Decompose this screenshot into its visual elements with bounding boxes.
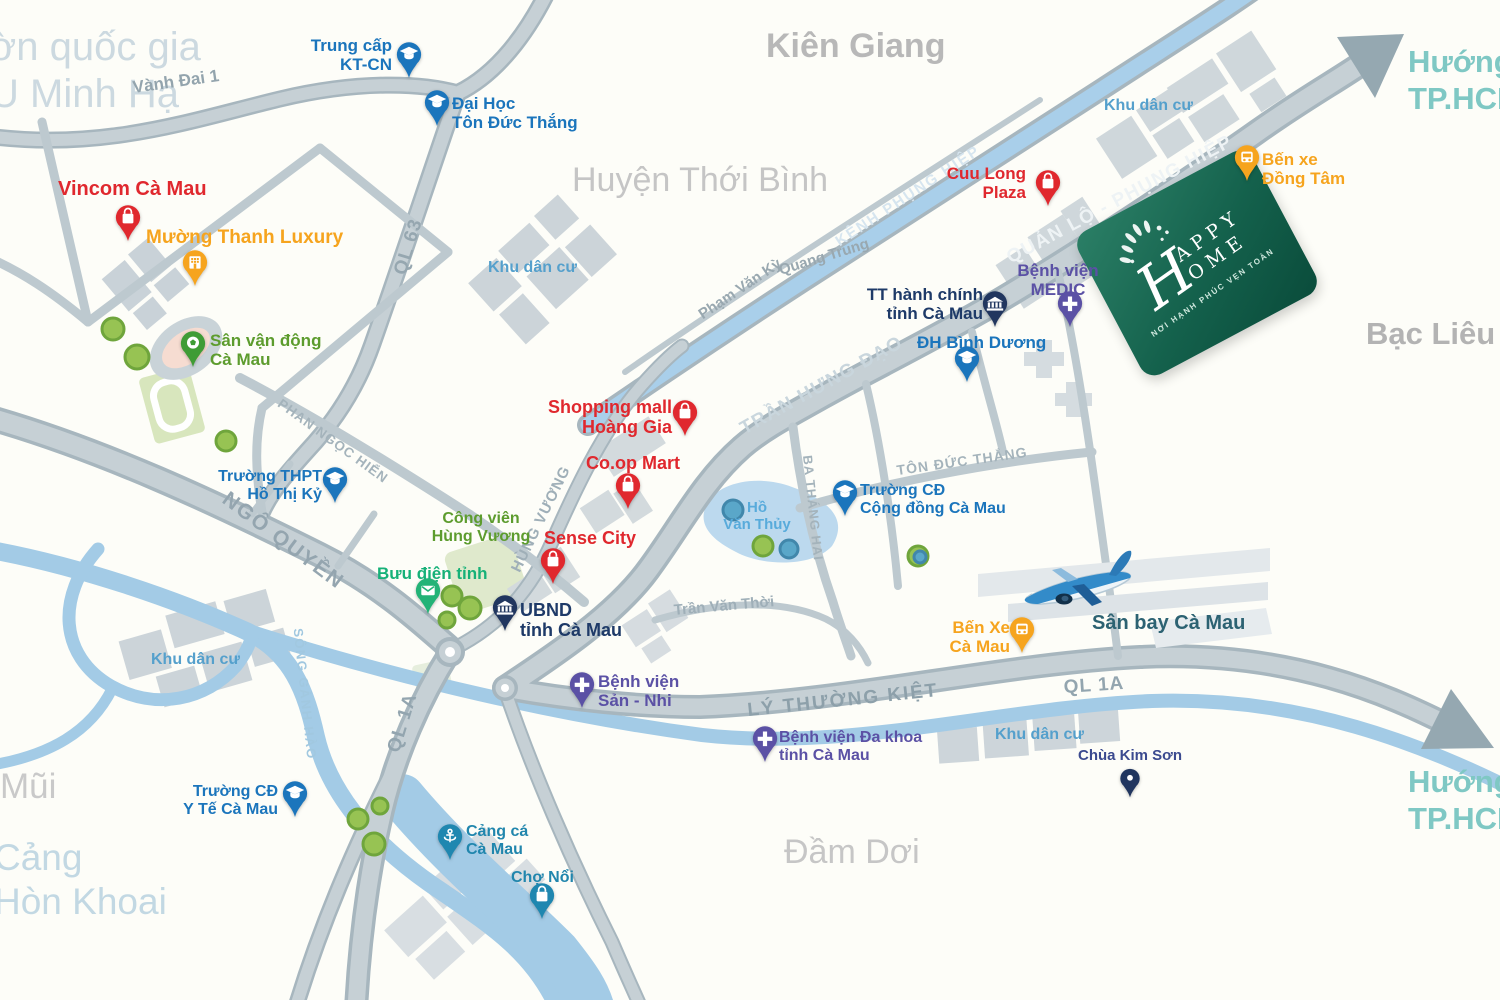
poi-cang-ca-pin [435,822,465,862]
ca-mau-location-map: ờn quốc gia U Minh Hạ Kiên Giang Huyện T… [0,0,1500,1000]
poi-label-cang-ca: Cảng cá Cà Mau [466,823,528,859]
poi-label-ben-xe-ca-mau: Bến Xe Cà Mau [950,618,1010,656]
rivers [0,548,1500,1000]
poi-sense-city-pin [538,546,568,586]
anchor-pin-icon [435,822,465,862]
education-pin-icon [280,779,310,819]
poi-label-ben-xe-dong-tam: Bến xe Đồng Tâm [1262,150,1345,188]
poi-tt-hanh-chinh-pin [980,289,1010,329]
lake-label-ho-van-thuy: Hồ Văn Thủy [723,500,791,534]
poi-bv-da-khoa-pin [750,724,780,764]
poi-label-dh-ton-duc-thang: Đại Học Tôn Đức Thắng [452,94,578,132]
poi-label-cho-noi: Chợ Nổi [511,869,574,887]
hospital-pin-icon [567,670,597,710]
region-mui: Mũi [0,766,56,807]
poi-ben-xe-ca-mau-pin [1007,615,1037,655]
poi-hoang-gia-pin [670,398,700,438]
poi-cuu-long-plaza-pin [1033,168,1063,208]
bus-station-pin-icon [1007,615,1037,655]
poi-cd-cong-dong-pin [830,478,860,518]
poi-label-hoang-gia: Shopping mall Hoàng Gia [548,397,672,437]
education-pin-icon [394,40,424,80]
direction-hcm-east: Hướng TP.HCM [1408,764,1500,837]
shopping-bag-pin-icon [613,471,643,511]
education-pin-icon [422,88,452,128]
poi-chua-kim-son-pin [1118,767,1142,799]
shopping-bag-pin-icon [538,546,568,586]
poi-label-trung-cap-ktcn: Trung cấp KT-CN [311,36,392,74]
poi-bv-san-nhi-pin [567,670,597,710]
poi-label-buu-dien: Bưu điện tỉnh [377,564,488,583]
poi-label-coop-mart: Co.op Mart [586,453,680,473]
shopping-bag-pin-icon [670,398,700,438]
direction-hcm-north: Hướng TP.HCM [1408,44,1500,117]
education-pin-icon [830,478,860,518]
poi-cd-y-te-pin [280,779,310,819]
shopping-bag-pin-icon [113,203,143,243]
temple-pin-icon [1118,767,1142,799]
airport-label-san-bay: Sân bay Cà Mau [1092,612,1245,634]
poi-vincom-pin [113,203,143,243]
poi-label-cuu-long-plaza: Cuu Long Plaza [947,164,1026,202]
region-cang-hon-khoai: Cảng Hòn Khoai [0,836,167,923]
poi-label-muong-thanh: Mường Thanh Luxury [146,227,343,248]
area-khu-dan-cu-3: Khu dân cư [151,651,240,669]
poi-label-ubnd: UBND tỉnh Cà Mau [520,600,622,640]
poi-label-bv-da-khoa: Bệnh viện Đa khoa tỉnh Cà Mau [779,729,922,765]
region-dam-doi: Đầm Dơi [784,832,920,872]
region-huyen-thoi-binh: Huyện Thới Bình [572,160,828,200]
poi-label-san-van-dong: Sân vận động Cà Mau [210,331,321,369]
poi-ben-xe-dong-tam-pin [1232,143,1262,183]
government-pin-icon [490,593,520,633]
government-pin-icon [980,289,1010,329]
poi-trung-cap-ktcn-pin [394,40,424,80]
poi-label-dh-binh-duong: ĐH Bình Dương [917,333,1046,352]
hotel-pin-icon [180,248,210,288]
poi-thpt-ho-thi-ky-pin [320,465,350,505]
poi-label-bv-medic: Bệnh viện MEDIC [1017,261,1098,299]
poi-label-chua-kim-son: Chùa Kim Sơn [1078,748,1182,765]
region-kien-giang: Kiên Giang [766,26,945,66]
market-pin-icon [527,881,557,921]
area-khu-dan-cu-2: Khu dân cư [1104,97,1193,115]
bus-station-pin-icon [1232,143,1262,183]
road-label-ql1a-east: QL 1A [1063,673,1125,699]
poi-label-sense-city: Sense City [544,528,636,548]
hospital-pin-icon [750,724,780,764]
stadium-pin-icon [178,329,208,369]
poi-label-bv-san-nhi: Bệnh viện Sản - Nhi [598,672,679,710]
poi-ubnd-pin [490,593,520,633]
poi-label-cd-y-te: Trường CĐ Y Tế Cà Mau [183,783,278,819]
poi-dh-ton-duc-thang-pin [422,88,452,128]
region-bac-lieu: Bạc Liêu [1366,316,1495,353]
poi-coop-mart-pin [613,471,643,511]
area-khu-dan-cu-1: Khu dân cư [488,259,577,277]
shopping-bag-pin-icon [1033,168,1063,208]
region-u-minh-ha: ờn quốc gia U Minh Hạ [0,24,201,118]
poi-label-thpt-ho-thi-ky: Trường THPT Hồ Thị Kỷ [218,468,322,504]
poi-muong-thanh-pin [180,248,210,288]
education-pin-icon [320,465,350,505]
poi-label-vincom: Vincom Cà Mau [58,178,207,200]
poi-label-cong-vien-hung-vuong: Công viên Hùng Vương [432,510,531,546]
poi-cho-noi-pin [527,881,557,921]
area-khu-dan-cu-4: Khu dân cư [995,726,1084,744]
poi-san-van-dong-pin [178,329,208,369]
poi-label-tt-hanh-chinh: TT hành chính tỉnh Cà Mau [867,285,983,323]
poi-label-cd-cong-dong: Trường CĐ Cộng đồng Cà Mau [860,482,1006,518]
